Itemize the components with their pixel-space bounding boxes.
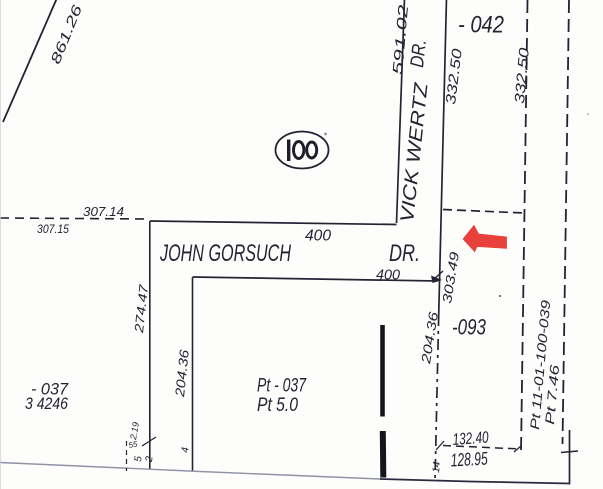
svg-text:3 4246: 3 4246 (25, 394, 68, 413)
svg-text:400: 400 (305, 228, 331, 245)
svg-text:DR.: DR. (407, 38, 431, 68)
svg-text:307.14: 307.14 (83, 205, 124, 219)
svg-text:14: 14 (431, 461, 443, 473)
svg-text:128.95: 128.95 (450, 448, 489, 471)
svg-text:Pt 5.0: Pt 5.0 (257, 395, 298, 416)
svg-text:Pt - 037: Pt - 037 (257, 376, 307, 397)
svg-text:- 042: - 042 (458, 12, 504, 39)
svg-text:400: 400 (376, 268, 400, 284)
svg-text:DR.: DR. (389, 240, 420, 267)
svg-text:JOHN GORSUCH: JOHN GORSUCH (159, 240, 291, 267)
svg-text:132.40: 132.40 (452, 428, 490, 449)
svg-text:-093: -093 (452, 315, 487, 340)
svg-text:307.15: 307.15 (37, 222, 69, 236)
